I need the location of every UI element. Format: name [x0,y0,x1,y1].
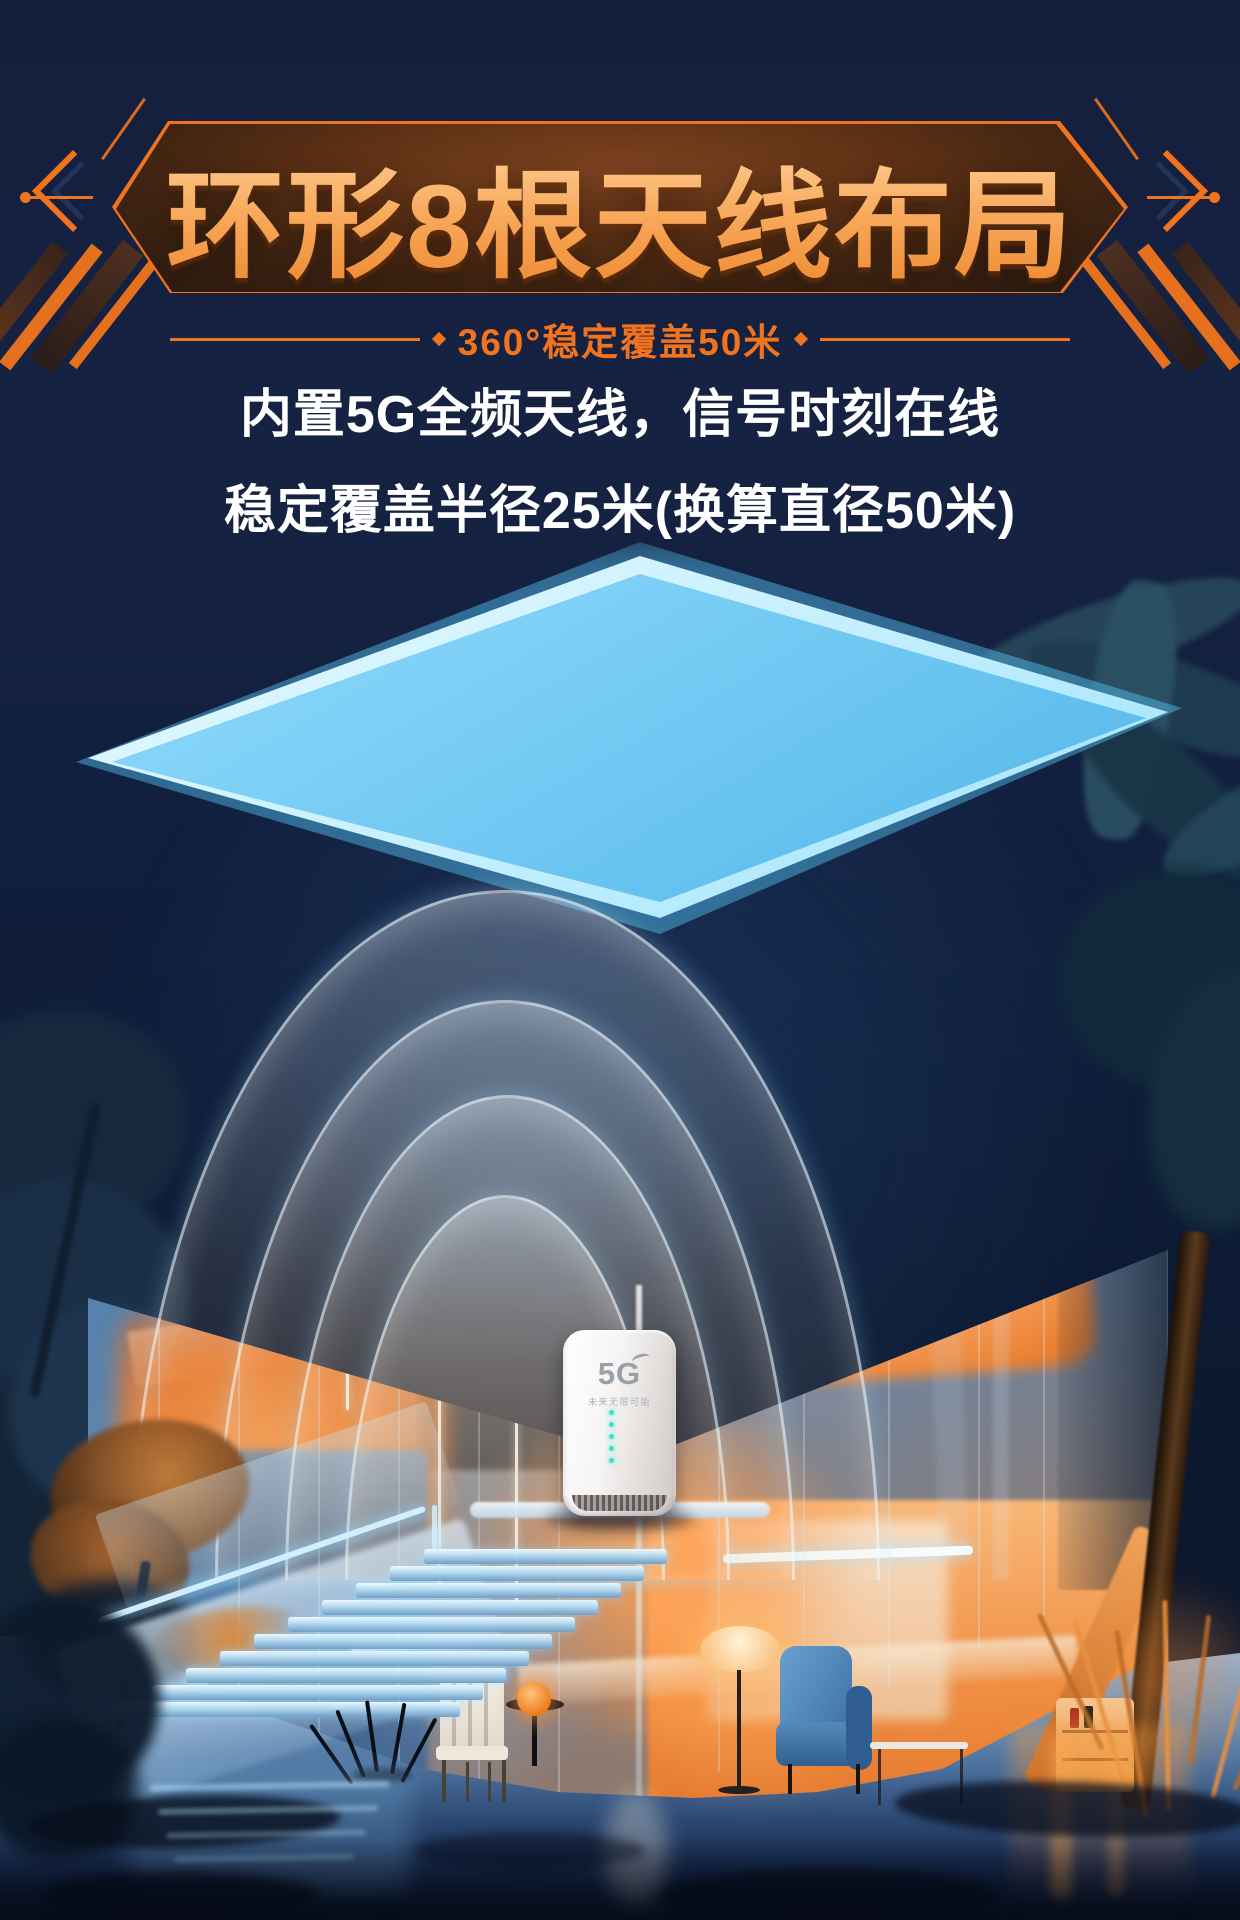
stair-step-9 [424,1549,667,1564]
scene-3d-house: 5G 未来无限可能 [0,540,1240,1920]
right-chevron-icon [1126,150,1208,232]
subtitle-line-left [170,338,420,341]
diagonal-accent-left [101,98,146,160]
diagonal-accent-right [1094,98,1139,160]
stair-step-8 [390,1566,644,1581]
stair-step-3 [220,1651,529,1666]
glass-table-leg-1 [878,1749,881,1805]
router-tagline: 未来无限可能 [563,1395,676,1408]
glass-table-top [870,1742,968,1749]
promo-poster: 环形8根天线布局 360°稳定覆盖50米 内置5G全频天线，信号时刻在线 稳定覆… [0,0,1240,1920]
subtitle-diamond-right-icon [794,332,808,346]
circuit-line-left [31,196,93,199]
circuit-line-right [1147,196,1209,199]
router-led-indicators [609,1410,614,1463]
stair-step-7 [356,1583,621,1598]
router-vent-grille [572,1495,667,1511]
white-chair-leg-1 [442,1760,446,1802]
white-chair-leg-4 [502,1760,506,1802]
floor-lamp-base [718,1786,760,1794]
stair-step-5 [288,1617,575,1632]
router-led-1 [609,1410,614,1415]
stool-ball-lamp [517,1682,551,1716]
stair-step-2 [186,1668,506,1683]
router-led-2 [609,1422,614,1427]
subtitle: 360°稳定覆盖50米 [458,312,783,366]
subtitle-diamond-left-icon [432,332,446,346]
stair-step-4 [254,1634,552,1649]
armchair-arm [846,1686,872,1770]
white-chair-leg-3 [488,1762,491,1802]
floor-lamp-pole [737,1670,741,1790]
floor-lamp-shade [700,1626,780,1672]
description-line-1: 内置5G全频天线，信号时刻在线 [0,372,1240,447]
subtitle-row: 360°稳定覆盖50米 [0,312,1240,366]
title-banner-fill: 环形8根天线布局 [103,117,1137,297]
router-logo: 5G [563,1356,676,1392]
5g-router: 5G 未来无限可能 [563,1330,676,1516]
white-chair-leg-2 [466,1762,469,1802]
circuit-dot-left-icon [20,192,31,203]
white-chair-seat [436,1746,508,1760]
page-title: 环形8根天线布局 [166,128,1074,286]
description-line-2: 稳定覆盖半径25米(换算直径50米) [0,468,1240,543]
stair-step-6 [322,1600,598,1615]
router-led-3 [609,1434,614,1439]
stair-step-1 [152,1685,483,1700]
water-bottom-dark [0,1840,1240,1920]
stair-step-0 [118,1702,460,1717]
router-led-4 [609,1446,614,1451]
white-chair-slat-3 [484,1678,488,1748]
armchair-leg-1 [788,1764,792,1794]
left-chevron-icon [32,150,114,232]
armchair-leg-2 [856,1764,860,1794]
subtitle-line-right [820,338,1070,341]
title-banner: 环形8根天线布局 [98,112,1142,302]
stool-stem [532,1708,537,1766]
router-led-5 [609,1458,614,1463]
circuit-dot-right-icon [1209,192,1220,203]
